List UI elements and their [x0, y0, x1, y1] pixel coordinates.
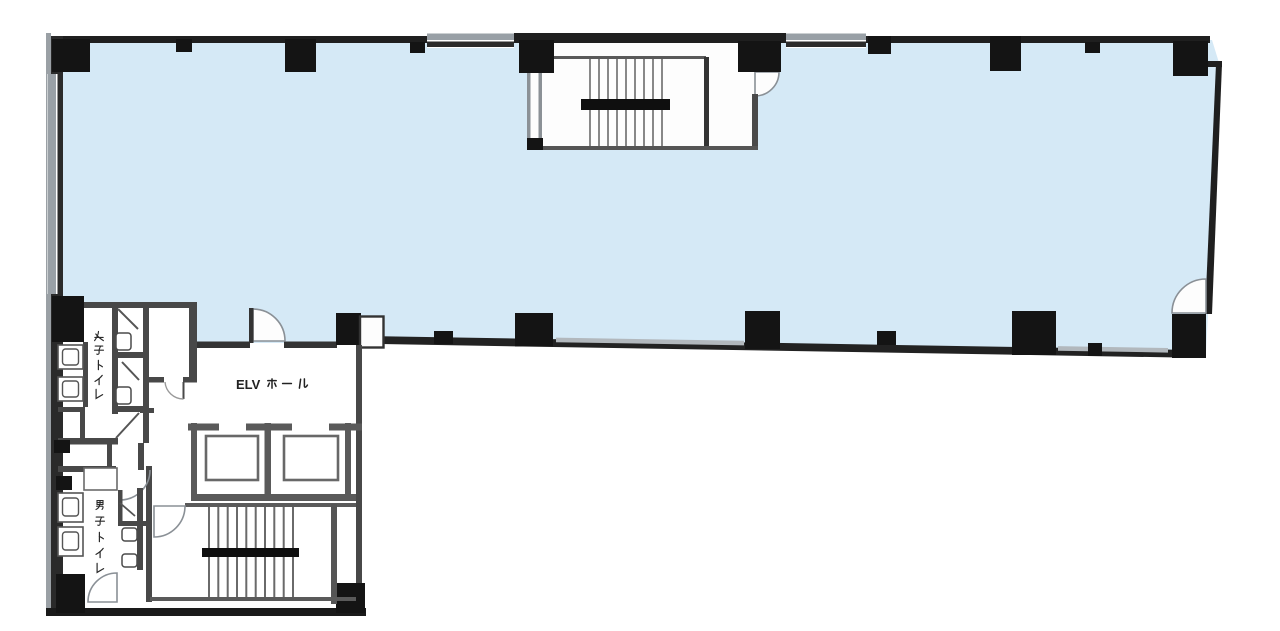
svg-text:ELV: ELV: [236, 377, 261, 392]
